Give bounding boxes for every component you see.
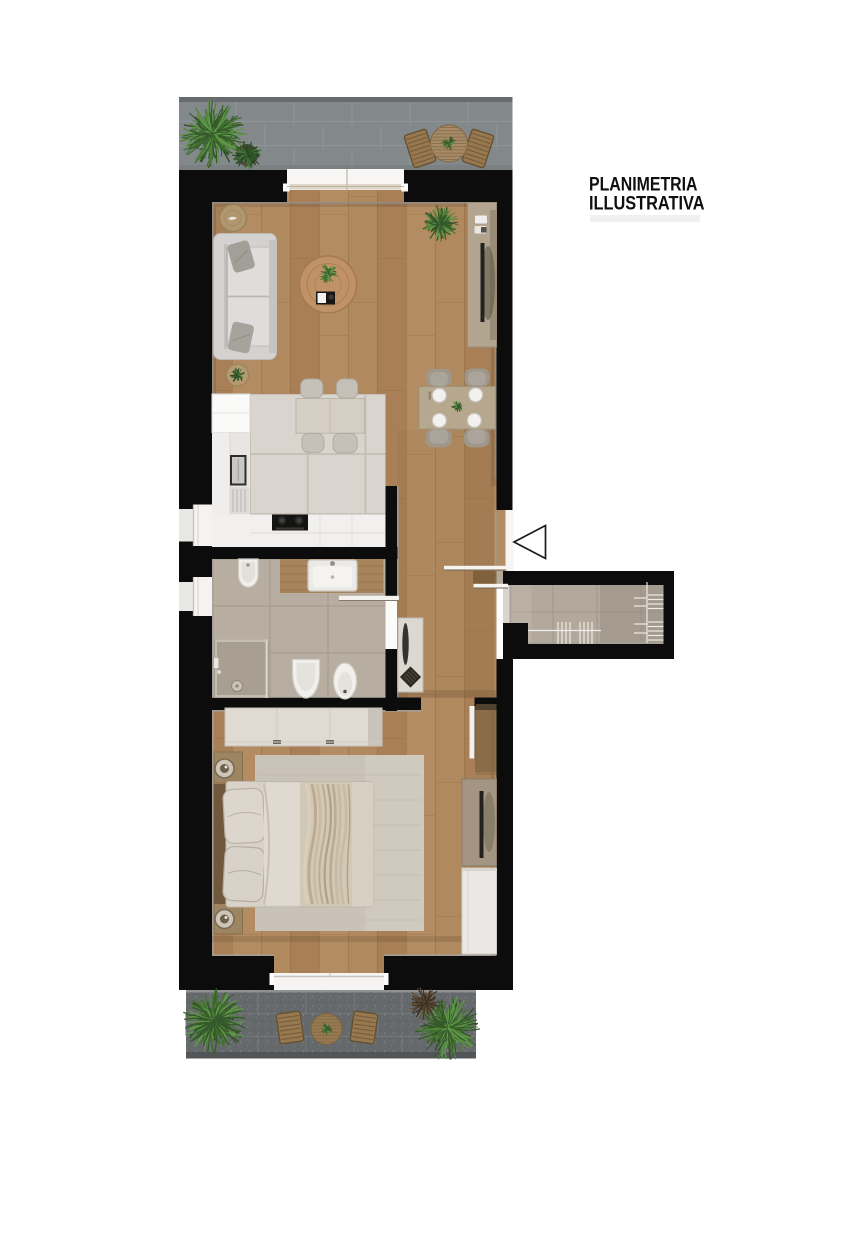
svg-text:ILLUSTRATIVA: ILLUSTRATIVA [589, 193, 705, 215]
